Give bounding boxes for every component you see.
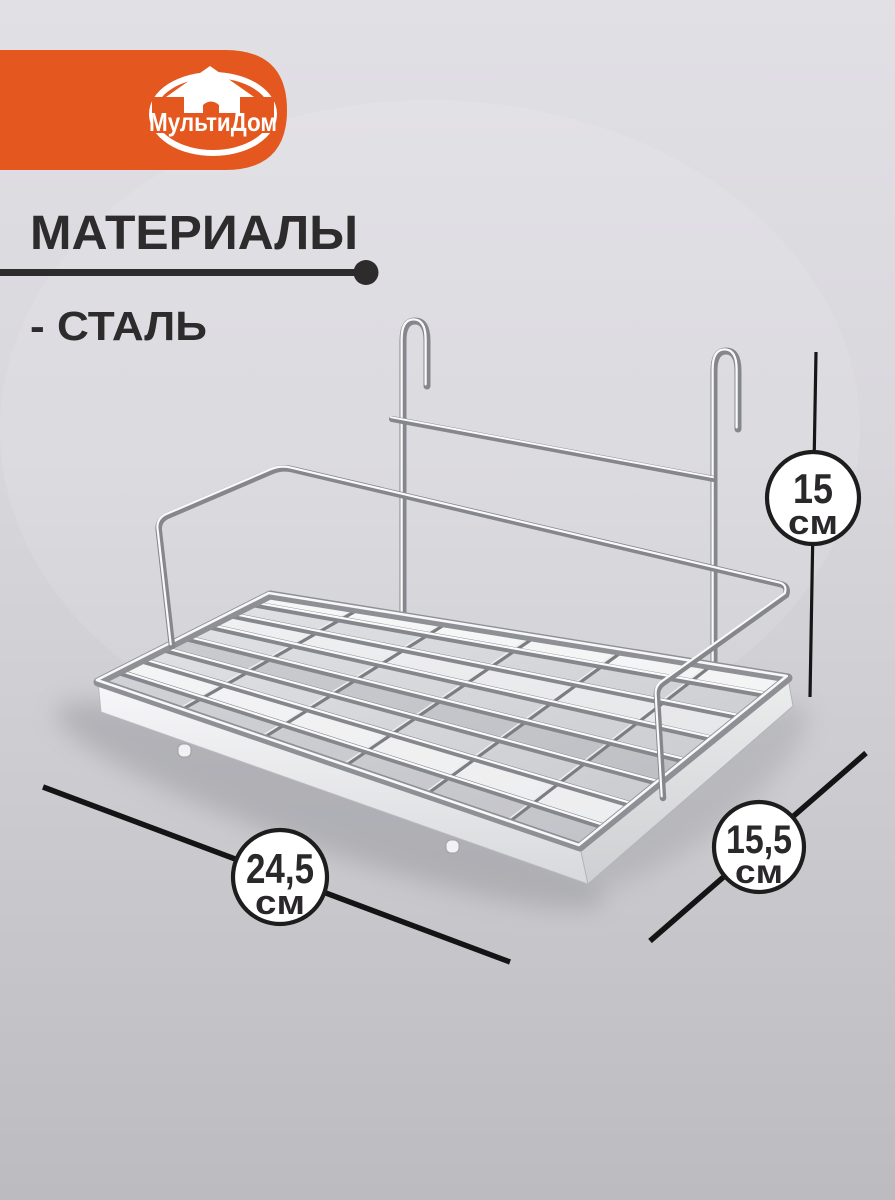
underline-dot bbox=[354, 260, 379, 285]
brand-name: МультиДом bbox=[149, 107, 277, 137]
material-item: - СТАЛЬ bbox=[30, 303, 207, 349]
infographic-canvas: МультиДом МАТЕРИАЛЫ - СТАЛЬ bbox=[0, 0, 895, 1200]
tray-foot bbox=[446, 840, 459, 853]
depth-unit: см bbox=[735, 853, 783, 890]
tray-foot bbox=[178, 744, 191, 757]
brand-banner: МультиДом bbox=[0, 50, 287, 170]
length-unit: см bbox=[255, 884, 305, 922]
page-title: МАТЕРИАЛЫ bbox=[30, 207, 358, 260]
product-infographic-page: МультиДом МАТЕРИАЛЫ - СТАЛЬ bbox=[0, 0, 895, 1200]
title-underline bbox=[0, 269, 356, 276]
height-unit: см bbox=[788, 504, 838, 542]
